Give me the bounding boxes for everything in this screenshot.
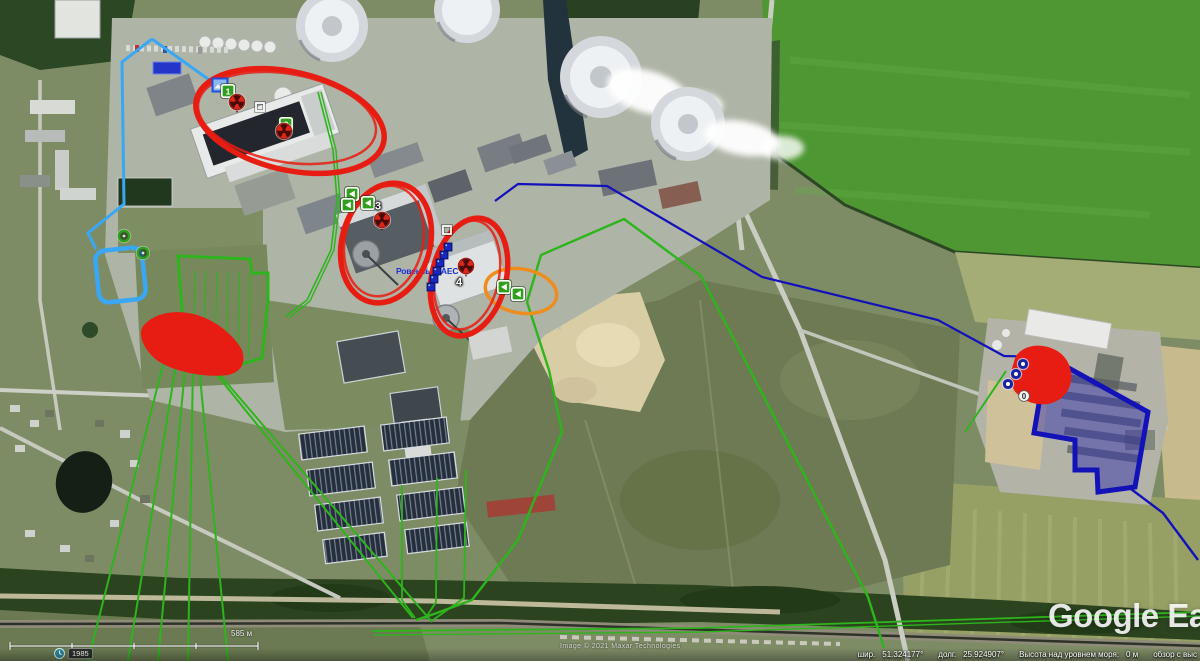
- view-label: обзор с выс: [1153, 650, 1197, 659]
- svg-text:0: 0: [1022, 392, 1027, 401]
- elevation-value: 0 м: [1126, 650, 1138, 659]
- earth-viewport[interactable]: Ровенська АЕС: [0, 0, 1200, 661]
- lon-label: долг.: [938, 650, 956, 659]
- marker-white-square[interactable]: [441, 224, 453, 236]
- marker-red-trefoil[interactable]: [372, 211, 392, 233]
- marker-red-trefoil[interactable]: [274, 122, 294, 144]
- lat-value: 51.324177°: [882, 650, 923, 659]
- marker-green-arrow[interactable]: [360, 195, 376, 211]
- marker-red-trefoil[interactable]: [227, 93, 247, 115]
- marker-green-arrow[interactable]: [510, 286, 526, 302]
- elevation-label: Высота над уровнем моря:: [1019, 650, 1119, 659]
- marker-navy-square[interactable]: [427, 283, 436, 292]
- marker-label-4[interactable]: 4: [456, 278, 462, 289]
- marker-white-square[interactable]: [254, 101, 266, 113]
- scale-label: 585 м: [231, 629, 252, 638]
- marker-green-donut[interactable]: [117, 229, 132, 244]
- marker-blue-donut[interactable]: [1002, 378, 1015, 391]
- marker-white-circle-0[interactable]: 0: [1018, 390, 1031, 403]
- marker-green-donut[interactable]: [136, 246, 151, 261]
- marker-green-arrow[interactable]: [340, 197, 356, 213]
- status-bar: шир. 51.324177° долг. 25.924907° Высота …: [0, 648, 1200, 661]
- lat-label: шир.: [858, 650, 876, 659]
- google-earth-logo: Google Earth: [1048, 597, 1200, 635]
- lon-value: 25.924907°: [963, 650, 1004, 659]
- placemarks-layer: 1 2 3: [0, 0, 1200, 661]
